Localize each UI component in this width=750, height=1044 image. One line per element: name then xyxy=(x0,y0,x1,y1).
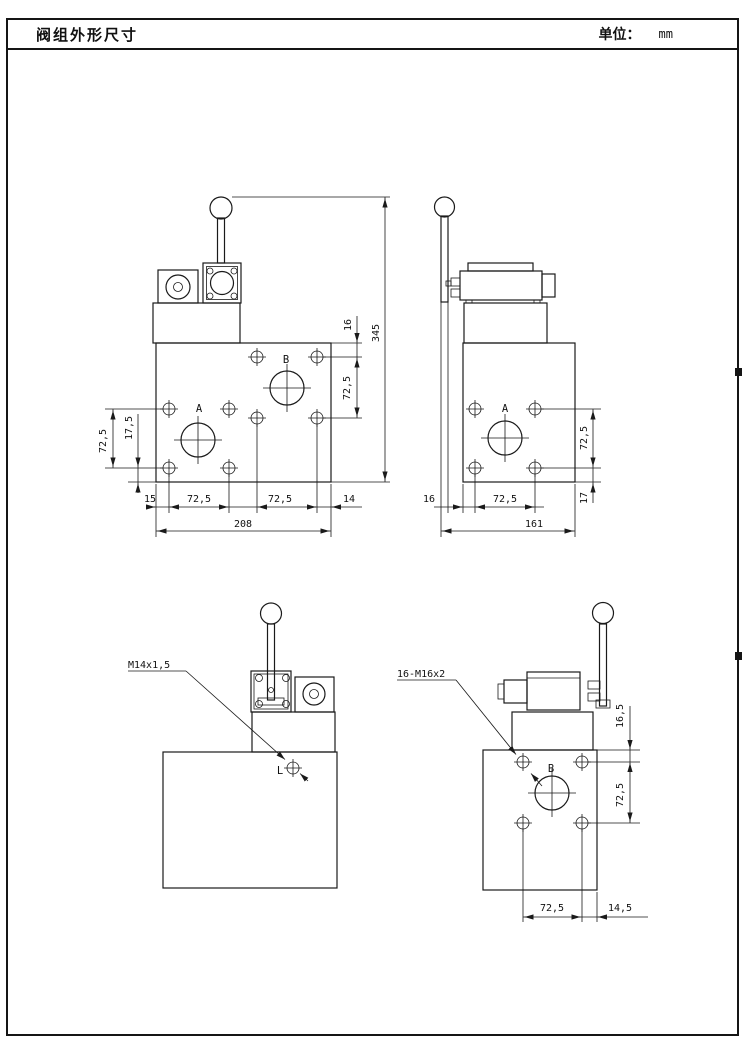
port-a-label: A xyxy=(196,403,203,415)
side-back-dimensions: 16,5 72,5 72,5 14,5 xyxy=(523,704,648,922)
back-view: M14x1,5 L xyxy=(128,603,337,888)
back-outline xyxy=(163,603,337,888)
lever-hinge xyxy=(451,289,460,297)
connector-box-front xyxy=(203,263,241,303)
thread-callout-m16: 16-M16x2 xyxy=(397,669,445,680)
side-view: A 72,5 17 16 72,5 161 xyxy=(423,197,601,537)
lever-ball-side-back xyxy=(593,603,614,624)
bolt-holes-front xyxy=(160,348,326,477)
port-a-label-side: A xyxy=(502,403,509,415)
dim-label-left-bottom-offset: 17,5 xyxy=(124,416,135,440)
side-back-ports: B xyxy=(514,753,591,832)
dim-label-side-overall-width: 161 xyxy=(525,519,543,530)
dim-label-back-right-top: 16,5 xyxy=(615,704,626,728)
valve-body-back xyxy=(163,752,337,888)
drawing-canvas: B A xyxy=(0,0,750,1044)
dim-label-side-bottom-margin: 16 xyxy=(423,494,435,505)
lever-shaft-side-back xyxy=(600,624,607,706)
dim-label-bottom-margin-right: 14 xyxy=(343,494,355,505)
dim-label-back-bottom-margin: 14,5 xyxy=(608,903,632,914)
solenoid-connector-side xyxy=(542,274,555,297)
dim-label-right-spacing: 72,5 xyxy=(342,376,353,400)
front-outline xyxy=(153,197,331,482)
side-back-outline xyxy=(483,603,614,891)
dim-label-overall-height: 345 xyxy=(371,324,382,342)
border-tick-mark xyxy=(735,652,742,660)
thread-callout-m14: M14x1,5 xyxy=(128,660,170,671)
bracket-screw-icon xyxy=(256,701,263,708)
knob-inner-circle-back xyxy=(310,690,319,699)
knob-outer-circle xyxy=(166,275,190,299)
bracket-screw-icon xyxy=(283,701,290,708)
side-dimensions: 72,5 17 16 72,5 161 xyxy=(423,302,601,537)
valve-neck-side-back xyxy=(512,712,593,750)
dim-label-left-spacing: 72,5 xyxy=(98,429,109,453)
side-back-view: B 16-M16x2 16,5 72,5 72,5 14,5 xyxy=(397,603,648,923)
port-b-crosshair xyxy=(263,364,311,412)
connector-screw-icon xyxy=(231,268,237,274)
lever-shaft-front xyxy=(218,218,225,263)
dim-label-back-bottom-spacing: 72,5 xyxy=(540,903,564,914)
valve-neck-back xyxy=(252,712,335,752)
valve-neck-front xyxy=(153,303,240,343)
dim-label-side-right-spacing: 72,5 xyxy=(579,426,590,450)
dim-label-side-right-bottom: 17 xyxy=(579,492,590,504)
front-ports: B A xyxy=(160,348,326,477)
connector-screw-icon xyxy=(207,293,213,299)
front-dimensions: 16 345 72,5 72,5 17,5 15 72,5 72,5 14 20… xyxy=(98,197,390,537)
bracket-screw-icon xyxy=(283,675,290,682)
port-b-crosshair-back xyxy=(528,769,576,817)
connector-circle xyxy=(211,272,234,295)
dim-label-overall-width: 208 xyxy=(234,519,252,530)
lever-bracket-back xyxy=(251,671,291,712)
valve-body-front xyxy=(156,343,331,482)
dim-label-side-bottom-spacing: 72,5 xyxy=(493,494,517,505)
knob-outer-circle-back xyxy=(303,683,325,705)
side-ports: A xyxy=(466,400,544,477)
port-l-label: L xyxy=(277,765,283,777)
lever-ball-back xyxy=(261,603,282,624)
back-callout: M14x1,5 L xyxy=(128,660,308,781)
lever-ball-side xyxy=(435,197,455,217)
port-a-crosshair-side xyxy=(481,414,529,462)
dim-label-bottom-spacing-right: 72,5 xyxy=(268,494,292,505)
solenoid-body-side xyxy=(460,271,542,300)
knob-inner-circle xyxy=(174,283,183,292)
lever-hinge xyxy=(451,278,460,286)
lever-shaft-side xyxy=(441,216,448,302)
dim-label-top-offset: 16 xyxy=(343,319,354,331)
port-b-label-back: B xyxy=(548,763,554,775)
connector-screw-icon xyxy=(207,268,213,274)
solenoid-connector-back xyxy=(504,680,527,703)
solenoid-top-plate xyxy=(468,263,533,271)
valve-neck-side xyxy=(464,303,547,343)
bracket-screw-icon xyxy=(256,675,263,682)
side-back-callout: 16-M16x2 xyxy=(397,669,542,786)
lever-hinge-back xyxy=(588,681,600,689)
dim-label-bottom-margin-left: 15 xyxy=(144,494,156,505)
knob-box-back xyxy=(295,677,334,712)
dim-label-back-right-spacing: 72,5 xyxy=(615,783,626,807)
valve-body-side-back xyxy=(483,750,597,890)
port-a-crosshair xyxy=(174,416,222,464)
port-b-label: B xyxy=(283,354,289,366)
connector-screw-icon xyxy=(231,293,237,299)
front-view: B A xyxy=(98,197,390,537)
dim-label-bottom-spacing-left: 72,5 xyxy=(187,494,211,505)
drawing-sheet-page: 阀组外形尺寸 单位： mm xyxy=(0,0,750,1044)
border-tick-mark xyxy=(735,368,742,376)
lever-ball-front xyxy=(210,197,232,219)
